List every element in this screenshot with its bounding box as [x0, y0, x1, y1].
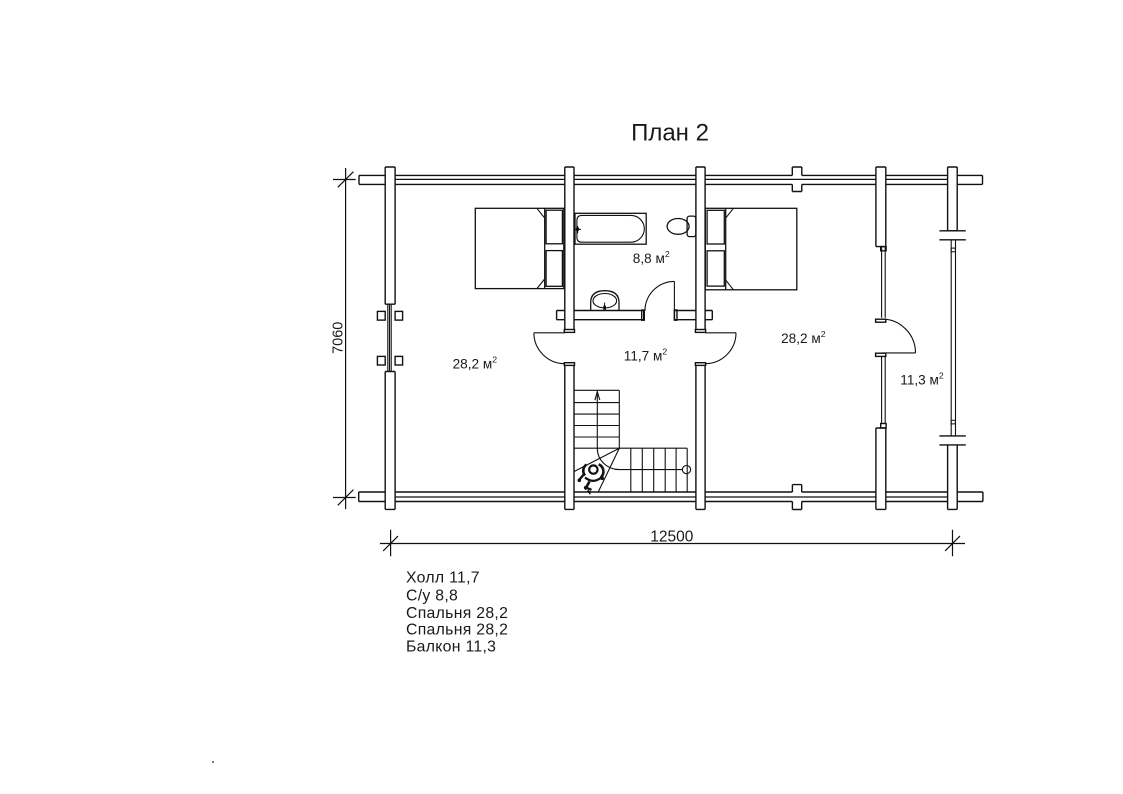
svg-text:Холл 11,7: Холл 11,7 [406, 570, 480, 587]
svg-text:12500: 12500 [650, 528, 693, 545]
svg-text:Спальня 28,2: Спальня 28,2 [406, 605, 508, 622]
svg-text:8,8 м2: 8,8 м2 [633, 249, 670, 266]
svg-text:Спальня 28,2: Спальня 28,2 [406, 622, 508, 639]
svg-text:Балкон 11,3: Балкон 11,3 [406, 639, 496, 656]
svg-text:7060: 7060 [331, 322, 347, 354]
svg-text:11,3 м2: 11,3 м2 [900, 371, 944, 388]
svg-text:28,2 м2: 28,2 м2 [781, 329, 826, 346]
svg-text:С/у 8,8: С/у 8,8 [406, 588, 458, 605]
svg-text:План 2: План 2 [631, 120, 709, 147]
svg-text:28,2 м2: 28,2 м2 [453, 354, 498, 371]
svg-text:11,7 м2: 11,7 м2 [624, 347, 668, 364]
